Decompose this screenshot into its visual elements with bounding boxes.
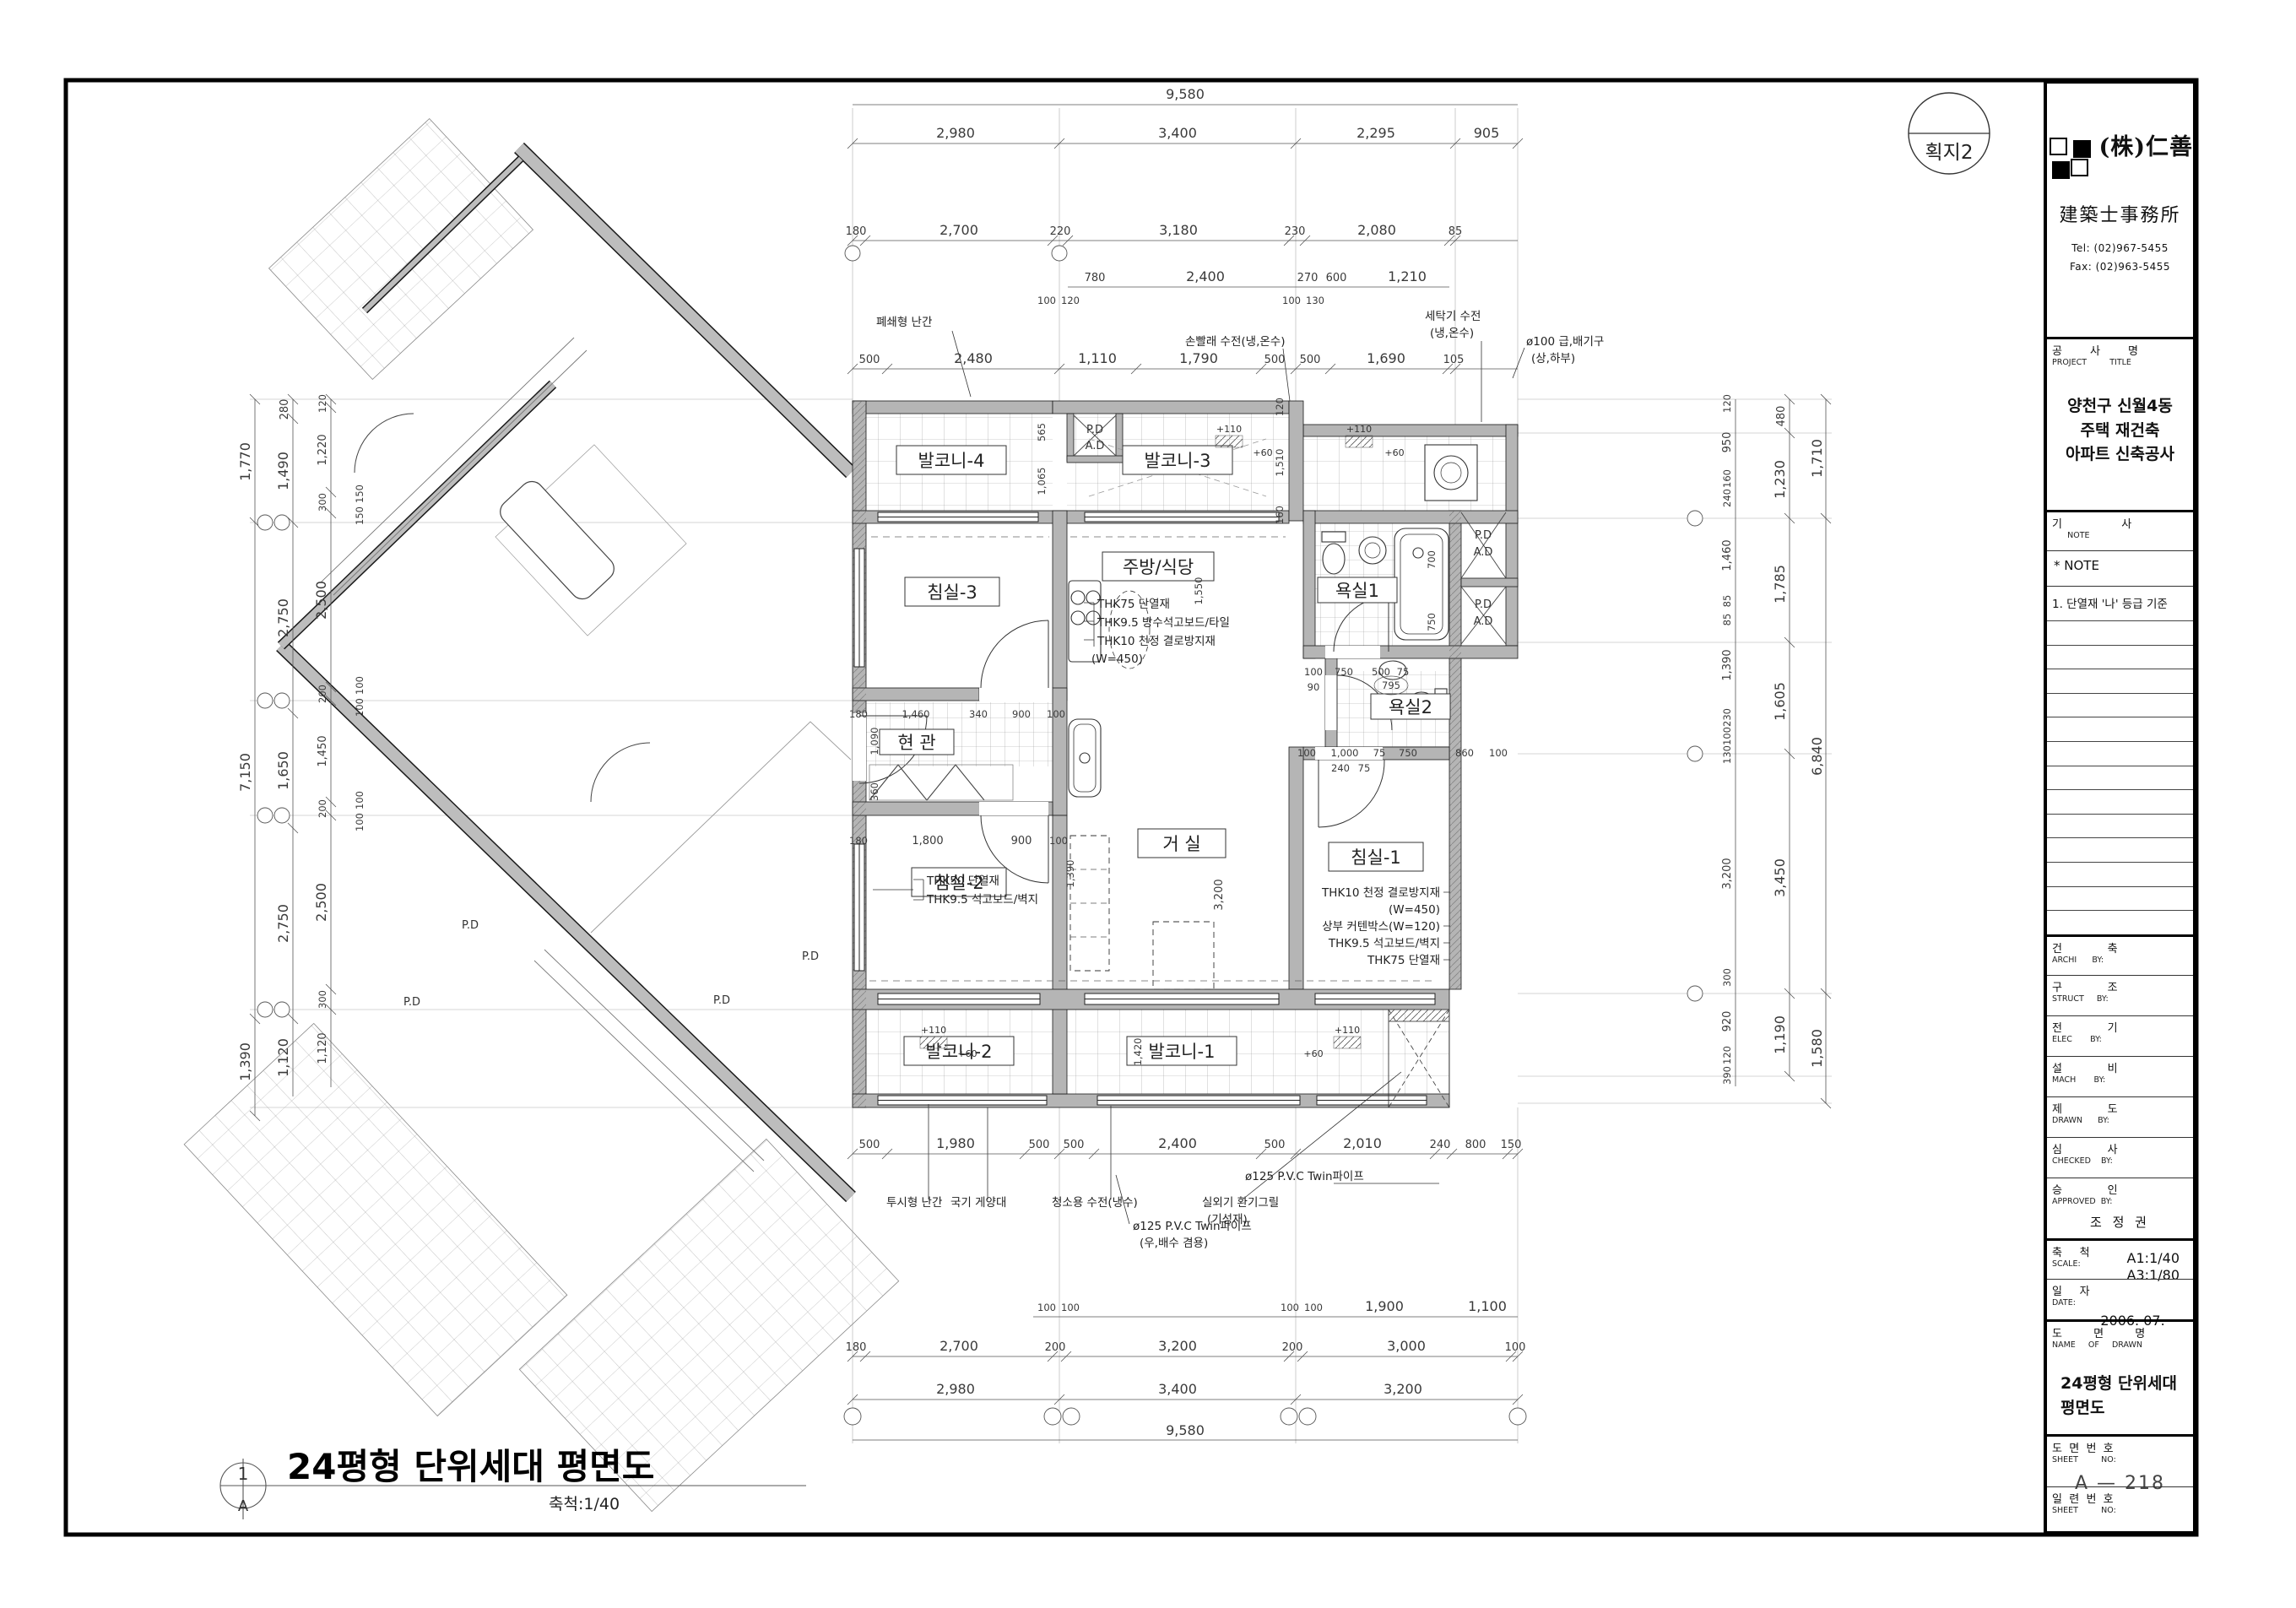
sheetno-ko: 도 면 번 호: [2052, 1439, 2188, 1455]
sheetno-en: SHEET NO:: [2052, 1455, 2188, 1465]
svg-text:150: 150: [354, 506, 366, 525]
scale-row: 축 척 SCALE: A1:1/40 A3:1/80: [2047, 1238, 2193, 1279]
svg-text:1,650: 1,650: [275, 751, 291, 790]
svg-text:780: 780: [1085, 272, 1106, 284]
svg-text:2,980: 2,980: [936, 125, 975, 141]
svg-text:1,460: 1,460: [1721, 539, 1734, 571]
svg-text:100: 100: [1061, 1302, 1080, 1313]
svg-text:1,390: 1,390: [1064, 860, 1076, 888]
approved-row: 승 인 APPROVED BY: 조 정 권: [2047, 1178, 2193, 1238]
svg-text:900: 900: [1011, 835, 1032, 847]
neighbor-unit: P.D P.D P.D P.D: [184, 119, 899, 1512]
room-balc3: 발코니-3: [1145, 451, 1211, 471]
neighbor-pd-label: P.D: [802, 950, 819, 963]
sheet-no-row: 도 면 번 호 SHEET NO: A — 218: [2047, 1434, 2193, 1486]
svg-text:2,480: 2,480: [954, 350, 993, 366]
room-bath2: 욕실2: [1389, 697, 1432, 717]
svg-text:600: 600: [1326, 272, 1347, 284]
ann-washer: (냉,온수): [1430, 327, 1474, 340]
room-bath1: 욕실1: [1335, 581, 1379, 601]
svg-text:6,840: 6,840: [1809, 737, 1825, 776]
svg-text:120: 120: [1274, 398, 1286, 416]
svg-text:2,080: 2,080: [1357, 222, 1396, 238]
svg-text:220: 220: [1050, 225, 1071, 238]
svg-text:800: 800: [1465, 1139, 1486, 1151]
svg-text:100: 100: [1489, 747, 1508, 759]
project-label-ko: 공 사 명: [2052, 342, 2188, 358]
empty-note-rows: [2047, 620, 2193, 934]
firm-section: (株)仁善 建築士事務所 Tel: (02)967-5455 Fax: (02)…: [2047, 84, 2193, 337]
note-kitchen: (W=450): [1091, 652, 1143, 666]
svg-text:200: 200: [1282, 1341, 1303, 1354]
elec-ko: 전 기: [2052, 1019, 2188, 1035]
svg-text:85: 85: [1449, 225, 1463, 238]
title-block: (株)仁善 建築士事務所 Tel: (02)967-5455 Fax: (02)…: [2044, 80, 2196, 1535]
svg-text:200: 200: [317, 685, 328, 703]
archi-row: 건 축 ARCHI BY:: [2047, 934, 2193, 975]
dwgname-en: NAME OF DRAWN: [2052, 1340, 2188, 1350]
svg-text:280: 280: [279, 399, 291, 420]
svg-text:2,010: 2,010: [1343, 1135, 1382, 1151]
note-bed1: THK75 단열재: [1367, 954, 1440, 967]
svg-text:1,190: 1,190: [1772, 1015, 1788, 1054]
svg-text:240: 240: [1331, 762, 1350, 774]
svg-text:500: 500: [1064, 1139, 1085, 1151]
svg-text:100: 100: [1721, 727, 1733, 745]
svg-text:340: 340: [969, 708, 988, 720]
drawing-scale: 축척:1/40: [549, 1495, 620, 1513]
neighbor-pd-label: P.D: [713, 994, 730, 1007]
ann-washer: 세탁기 수전: [1425, 310, 1481, 323]
dwgname-ko: 도 면 명: [2052, 1324, 2188, 1340]
ann-rail-bot: 투시형 난간: [886, 1196, 942, 1210]
drawing-title: 24평형 단위세대 평면도: [287, 1446, 654, 1487]
svg-text:920: 920: [1721, 1011, 1734, 1032]
ad-label: A.D: [1086, 440, 1105, 452]
svg-text:1,220: 1,220: [317, 434, 329, 465]
svg-text:3,200: 3,200: [1384, 1381, 1422, 1397]
level-mark: +60: [1303, 1048, 1323, 1059]
svg-text:750: 750: [1426, 613, 1438, 631]
svg-text:1,000: 1,000: [1331, 747, 1359, 759]
svg-text:1,210: 1,210: [1388, 268, 1427, 284]
svg-text:85: 85: [1721, 614, 1733, 626]
svg-text:1,120: 1,120: [275, 1038, 291, 1077]
note-bed2: THK9.5 석고보드/벽지: [926, 893, 1038, 907]
svg-text:2,400: 2,400: [1158, 1135, 1197, 1151]
date-ko: 일 자: [2052, 1282, 2188, 1298]
svg-text:150: 150: [1501, 1139, 1522, 1151]
svg-text:1,390: 1,390: [1721, 649, 1734, 680]
drawing-name-row: 도 면 명 NAME OF DRAWN 24평형 단위세대 평면도: [2047, 1319, 2193, 1434]
svg-text:160: 160: [1274, 506, 1286, 524]
svg-text:180: 180: [846, 1341, 867, 1354]
detail-number: 1: [238, 1464, 249, 1484]
svg-text:120: 120: [1721, 1046, 1733, 1064]
svg-text:1,065: 1,065: [1036, 468, 1048, 495]
note-item-row: 1. 단열재 '나' 등급 기준: [2047, 586, 2193, 620]
firm-name: (株)仁善: [2098, 128, 2193, 161]
pd-label: P.D: [1475, 529, 1492, 542]
room-hall: 현 관: [897, 733, 935, 753]
svg-text:1,790: 1,790: [1179, 350, 1218, 366]
svg-text:1,605: 1,605: [1772, 682, 1788, 721]
room-kitchen: 주방/식당: [1123, 557, 1194, 577]
svg-text:1,090: 1,090: [869, 728, 880, 755]
firm-tel: Tel: (02)967-5455: [2047, 242, 2193, 254]
svg-text:9,580: 9,580: [1166, 86, 1205, 102]
project-name-line: 주택 재건축: [2047, 419, 2193, 443]
svg-text:3,200: 3,200: [1213, 879, 1226, 910]
svg-text:100: 100: [1505, 1341, 1526, 1354]
room-living: 거 실: [1162, 834, 1200, 854]
detail-letter: A: [238, 1497, 249, 1515]
svg-text:1,690: 1,690: [1367, 350, 1405, 366]
level-mark: +60: [1253, 447, 1272, 458]
svg-text:2,500: 2,500: [313, 883, 329, 922]
ann-vent: (상,하부): [1531, 352, 1575, 365]
svg-text:200: 200: [1045, 1341, 1066, 1354]
note-bed1: THK10 천정 결로방지재: [1321, 886, 1440, 900]
ann-vent: ø100 급,배기구: [1526, 335, 1604, 349]
ad-label: A.D: [1474, 546, 1493, 559]
svg-text:7,150: 7,150: [237, 753, 253, 792]
serial-en: SHEET NO:: [2052, 1506, 2188, 1515]
svg-text:150: 150: [354, 485, 366, 503]
svg-text:9,580: 9,580: [1166, 1422, 1205, 1438]
neighbor-pd-label: P.D: [462, 919, 479, 932]
note-label-ko: 기 사: [2052, 515, 2188, 531]
svg-text:100: 100: [1304, 1302, 1323, 1313]
svg-text:100: 100: [354, 791, 366, 809]
note-star-row: * NOTE: [2047, 550, 2193, 586]
firm-office: 建築士事務所: [2047, 200, 2193, 227]
svg-text:2,750: 2,750: [275, 904, 291, 943]
serial-ko: 일 련 번 호: [2052, 1490, 2188, 1506]
ann-grille: 실외기 환기그릴: [1202, 1196, 1279, 1210]
svg-text:500: 500: [1300, 354, 1321, 366]
level-mark: +60: [957, 1048, 977, 1059]
svg-text:480: 480: [1775, 406, 1788, 427]
ann-pvc2: ø125 P.V.C Twin파이프: [1245, 1170, 1364, 1183]
svg-text:1,450: 1,450: [317, 735, 329, 766]
svg-text:3,200: 3,200: [1158, 1338, 1197, 1354]
svg-text:200: 200: [317, 799, 328, 818]
svg-text:1,580: 1,580: [1809, 1029, 1825, 1068]
serial-no-row: 일 련 번 호 SHEET NO:: [2047, 1486, 2193, 1535]
dwgname-line1: 24평형 단위세대: [2060, 1372, 2181, 1396]
svg-text:160: 160: [1721, 469, 1733, 488]
note-kitchen: THK75 단열재: [1097, 598, 1170, 611]
svg-text:120: 120: [1721, 394, 1733, 413]
svg-text:1,120: 1,120: [317, 1032, 329, 1064]
svg-text:500: 500: [859, 354, 880, 366]
pd-label: P.D: [1086, 424, 1103, 436]
svg-text:1,420: 1,420: [1132, 1038, 1144, 1066]
struct-en: STRUCT BY:: [2052, 994, 2188, 1004]
svg-text:390: 390: [1721, 1066, 1733, 1085]
svg-text:860: 860: [1455, 747, 1474, 759]
svg-text:1,900: 1,900: [1365, 1298, 1404, 1314]
drawn-ko: 제 도: [2052, 1100, 2188, 1116]
svg-text:130: 130: [1721, 745, 1733, 764]
firm-logo-icon: [2050, 138, 2088, 176]
svg-text:750: 750: [1335, 666, 1353, 678]
note-star: * NOTE: [2054, 558, 2099, 573]
ann-rail-top: 폐쇄형 난간: [876, 316, 932, 329]
svg-text:700: 700: [1426, 550, 1438, 569]
svg-text:270: 270: [1297, 272, 1319, 284]
svg-text:180: 180: [846, 225, 867, 238]
svg-text:240: 240: [1721, 489, 1733, 507]
note-label-en: NOTE: [2052, 531, 2188, 540]
checked-row: 심 사 CHECKED BY:: [2047, 1137, 2193, 1178]
svg-text:120: 120: [1061, 295, 1080, 306]
svg-text:100: 100: [1049, 835, 1068, 847]
drawn-en: DRAWN BY:: [2052, 1116, 2188, 1125]
svg-text:1,980: 1,980: [936, 1135, 975, 1151]
svg-text:3,180: 3,180: [1159, 222, 1198, 238]
svg-text:2,750: 2,750: [275, 598, 291, 637]
svg-text:300: 300: [1721, 968, 1733, 987]
svg-text:100: 100: [354, 813, 366, 831]
pd-label: P.D: [1475, 598, 1492, 611]
svg-text:500: 500: [1029, 1139, 1050, 1151]
checked-ko: 심 사: [2052, 1140, 2188, 1156]
note-kitchen: THK9.5 방수석고보드/타일: [1097, 616, 1230, 630]
parcel-badge-label: 획지2: [1925, 142, 1974, 164]
svg-text:2,500: 2,500: [313, 581, 329, 620]
svg-text:750: 750: [1399, 747, 1417, 759]
svg-text:2,700: 2,700: [940, 1338, 978, 1354]
svg-text:1,230: 1,230: [1772, 460, 1788, 499]
svg-text:3,400: 3,400: [1158, 125, 1197, 141]
svg-text:100: 100: [1282, 295, 1301, 306]
svg-text:100: 100: [354, 676, 366, 695]
svg-text:1,490: 1,490: [275, 452, 291, 490]
svg-text:1,510: 1,510: [1274, 449, 1286, 477]
ann-pvc1: (우,배수 겸용): [1140, 1237, 1208, 1250]
project-name-line: 아파트 신축공사: [2047, 442, 2193, 467]
level-mark: +110: [1335, 1025, 1360, 1036]
svg-text:1,460: 1,460: [902, 708, 930, 720]
note-item: 1. 단열재 '나' 등급 기준: [2052, 598, 2168, 611]
project-name: 양천구 신월4동 주택 재건축 아파트 신축공사: [2047, 372, 2193, 510]
svg-text:230: 230: [1721, 708, 1733, 727]
svg-text:180: 180: [849, 708, 868, 720]
approved-en: APPROVED BY:: [2052, 1197, 2188, 1206]
ann-hand-wash: 손빨래 수전(냉,온수): [1185, 335, 1285, 349]
archi-ko: 건 축: [2052, 939, 2188, 956]
ann-grille: (기성재): [1207, 1213, 1248, 1226]
svg-text:3,450: 3,450: [1772, 858, 1788, 897]
ann-flag: 국기 게양대: [950, 1196, 1006, 1210]
svg-text:300: 300: [317, 493, 328, 512]
date-row: 일 자 DATE: 2006. 07.: [2047, 1279, 2193, 1319]
level-mark: +110: [1346, 424, 1372, 435]
svg-text:565: 565: [1036, 423, 1048, 441]
svg-text:1,390: 1,390: [237, 1042, 253, 1081]
svg-text:100: 100: [1037, 295, 1056, 306]
room-bed1: 침실-1: [1351, 847, 1401, 868]
svg-text:75: 75: [1358, 762, 1371, 774]
svg-text:1,100: 1,100: [1468, 1298, 1507, 1314]
struct-ko: 구 조: [2052, 978, 2188, 994]
svg-text:900: 900: [1012, 708, 1031, 720]
svg-text:100: 100: [1304, 666, 1323, 678]
ad-label: A.D: [1474, 615, 1493, 628]
svg-text:2,295: 2,295: [1356, 125, 1395, 141]
svg-text:1,110: 1,110: [1078, 350, 1117, 366]
svg-text:360: 360: [869, 782, 880, 801]
room-bed3: 침실-3: [927, 582, 977, 603]
archi-en: ARCHI BY:: [2052, 956, 2188, 965]
checked-en: CHECKED BY:: [2052, 1156, 2188, 1166]
svg-text:75: 75: [1373, 747, 1386, 759]
svg-text:1,800: 1,800: [912, 835, 943, 847]
elec-row: 전 기 ELEC BY:: [2047, 1015, 2193, 1056]
svg-text:3,400: 3,400: [1158, 1381, 1197, 1397]
svg-text:500: 500: [859, 1139, 880, 1151]
level-mark: +60: [1384, 447, 1404, 458]
level-mark: +110: [921, 1025, 946, 1036]
note-bed1: 상부 커텐박스(W=120): [1322, 920, 1440, 934]
svg-text:2,400: 2,400: [1186, 268, 1225, 284]
mach-ko: 설 비: [2052, 1059, 2188, 1075]
svg-text:1,785: 1,785: [1772, 565, 1788, 604]
svg-text:2,980: 2,980: [936, 1381, 975, 1397]
struct-row: 구 조 STRUCT BY:: [2047, 975, 2193, 1015]
svg-text:3,200: 3,200: [1721, 858, 1734, 889]
note-kitchen: THK10 천정 결로방지재: [1097, 635, 1216, 648]
mach-row: 설 비 MACH BY:: [2047, 1056, 2193, 1096]
svg-text:100: 100: [1297, 747, 1316, 759]
svg-text:300: 300: [317, 990, 328, 1009]
svg-text:950: 950: [1721, 432, 1734, 453]
svg-text:240: 240: [1430, 1139, 1451, 1151]
svg-text:1,770: 1,770: [237, 442, 253, 481]
svg-text:100: 100: [1047, 708, 1065, 720]
svg-text:130: 130: [1306, 295, 1324, 306]
project-name-line: 양천구 신월4동: [2047, 394, 2193, 419]
note-header: 기 사 NOTE: [2047, 510, 2193, 550]
svg-text:90: 90: [1308, 681, 1320, 693]
svg-text:100: 100: [1037, 1302, 1056, 1313]
svg-text:3,000: 3,000: [1387, 1338, 1426, 1354]
svg-text:795: 795: [1382, 679, 1400, 691]
svg-text:100: 100: [354, 698, 366, 717]
firm-fax: Fax: (02)963-5455: [2047, 261, 2193, 273]
project-title-header: 공 사 명 PROJECT TITLE: [2047, 337, 2193, 372]
svg-text:120: 120: [317, 394, 328, 413]
svg-text:2,700: 2,700: [940, 222, 978, 238]
parcel-badge: 획지2: [1909, 93, 1990, 174]
date-en: DATE:: [2052, 1298, 2188, 1308]
svg-text:500: 500: [1264, 354, 1286, 366]
svg-text:105: 105: [1443, 354, 1465, 366]
room-balc4: 발코니-4: [918, 451, 985, 471]
drawn-row: 제 도 DRAWN BY:: [2047, 1096, 2193, 1137]
note-bed1: (W=450): [1389, 903, 1440, 917]
svg-text:180: 180: [849, 835, 868, 847]
svg-text:75: 75: [1397, 666, 1410, 678]
svg-text:230: 230: [1285, 225, 1306, 238]
approved-name: 조 정 권: [2052, 1213, 2188, 1231]
footer-title: 1 A 24평형 단위세대 평면도 축척:1/40: [220, 1446, 806, 1519]
svg-text:1,710: 1,710: [1809, 439, 1825, 478]
svg-text:500: 500: [1264, 1139, 1286, 1151]
approved-ko: 승 인: [2052, 1181, 2188, 1197]
note-bed2: THK50 단열재: [926, 874, 999, 888]
dwgname-line2: 평면도: [2060, 1396, 2181, 1421]
svg-text:905: 905: [1474, 125, 1500, 141]
note-bed1: THK9.5 석고보드/벽지: [1328, 937, 1440, 950]
svg-text:1,550: 1,550: [1193, 577, 1205, 605]
drawing-sheet: 획지2 P.D P.D P.D: [0, 0, 2296, 1608]
neighbor-pd-label: P.D: [403, 996, 420, 1009]
elec-en: ELEC BY:: [2052, 1035, 2188, 1044]
svg-text:100: 100: [1281, 1302, 1299, 1313]
svg-text:85: 85: [1721, 595, 1733, 608]
mach-en: MACH BY:: [2052, 1075, 2188, 1085]
project-label-en: PROJECT TITLE: [2052, 358, 2188, 367]
level-mark: +110: [1216, 424, 1242, 435]
room-balc1: 발코니-1: [1149, 1042, 1216, 1062]
